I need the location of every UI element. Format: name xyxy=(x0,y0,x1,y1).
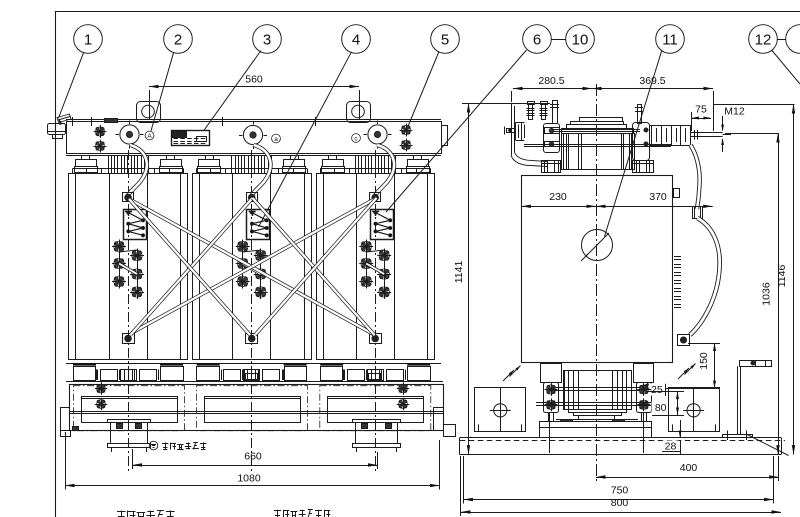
svg-text:1036: 1036 xyxy=(761,282,773,306)
svg-text:3: 3 xyxy=(263,31,271,48)
svg-text:230: 230 xyxy=(549,191,567,203)
svg-text:1080: 1080 xyxy=(237,473,261,485)
svg-text:280.5: 280.5 xyxy=(538,75,564,87)
svg-text:10: 10 xyxy=(572,31,589,48)
svg-text:28: 28 xyxy=(665,441,677,453)
svg-text:80: 80 xyxy=(655,402,667,414)
svg-text:11: 11 xyxy=(662,31,678,48)
svg-text:660: 660 xyxy=(244,451,262,463)
svg-text:75: 75 xyxy=(695,104,707,116)
svg-text:1: 1 xyxy=(84,31,92,48)
svg-text:2: 2 xyxy=(174,31,182,48)
svg-text:150: 150 xyxy=(698,352,710,370)
svg-text:369.5: 369.5 xyxy=(639,75,665,87)
svg-text:M12: M12 xyxy=(724,106,745,118)
svg-text:25: 25 xyxy=(651,384,663,396)
svg-text:4: 4 xyxy=(352,31,360,48)
svg-text:1141: 1141 xyxy=(453,261,465,284)
svg-text:12: 12 xyxy=(755,31,772,48)
svg-text:370: 370 xyxy=(649,191,667,203)
svg-text:5: 5 xyxy=(441,31,449,48)
svg-text:a: a xyxy=(274,136,278,143)
svg-text:800: 800 xyxy=(611,497,629,509)
svg-text:6: 6 xyxy=(533,31,541,48)
svg-text:400: 400 xyxy=(680,462,698,474)
svg-text:750: 750 xyxy=(611,485,629,497)
svg-text:560: 560 xyxy=(245,74,263,86)
svg-text:A: A xyxy=(147,133,152,140)
svg-text:1146: 1146 xyxy=(776,265,788,288)
